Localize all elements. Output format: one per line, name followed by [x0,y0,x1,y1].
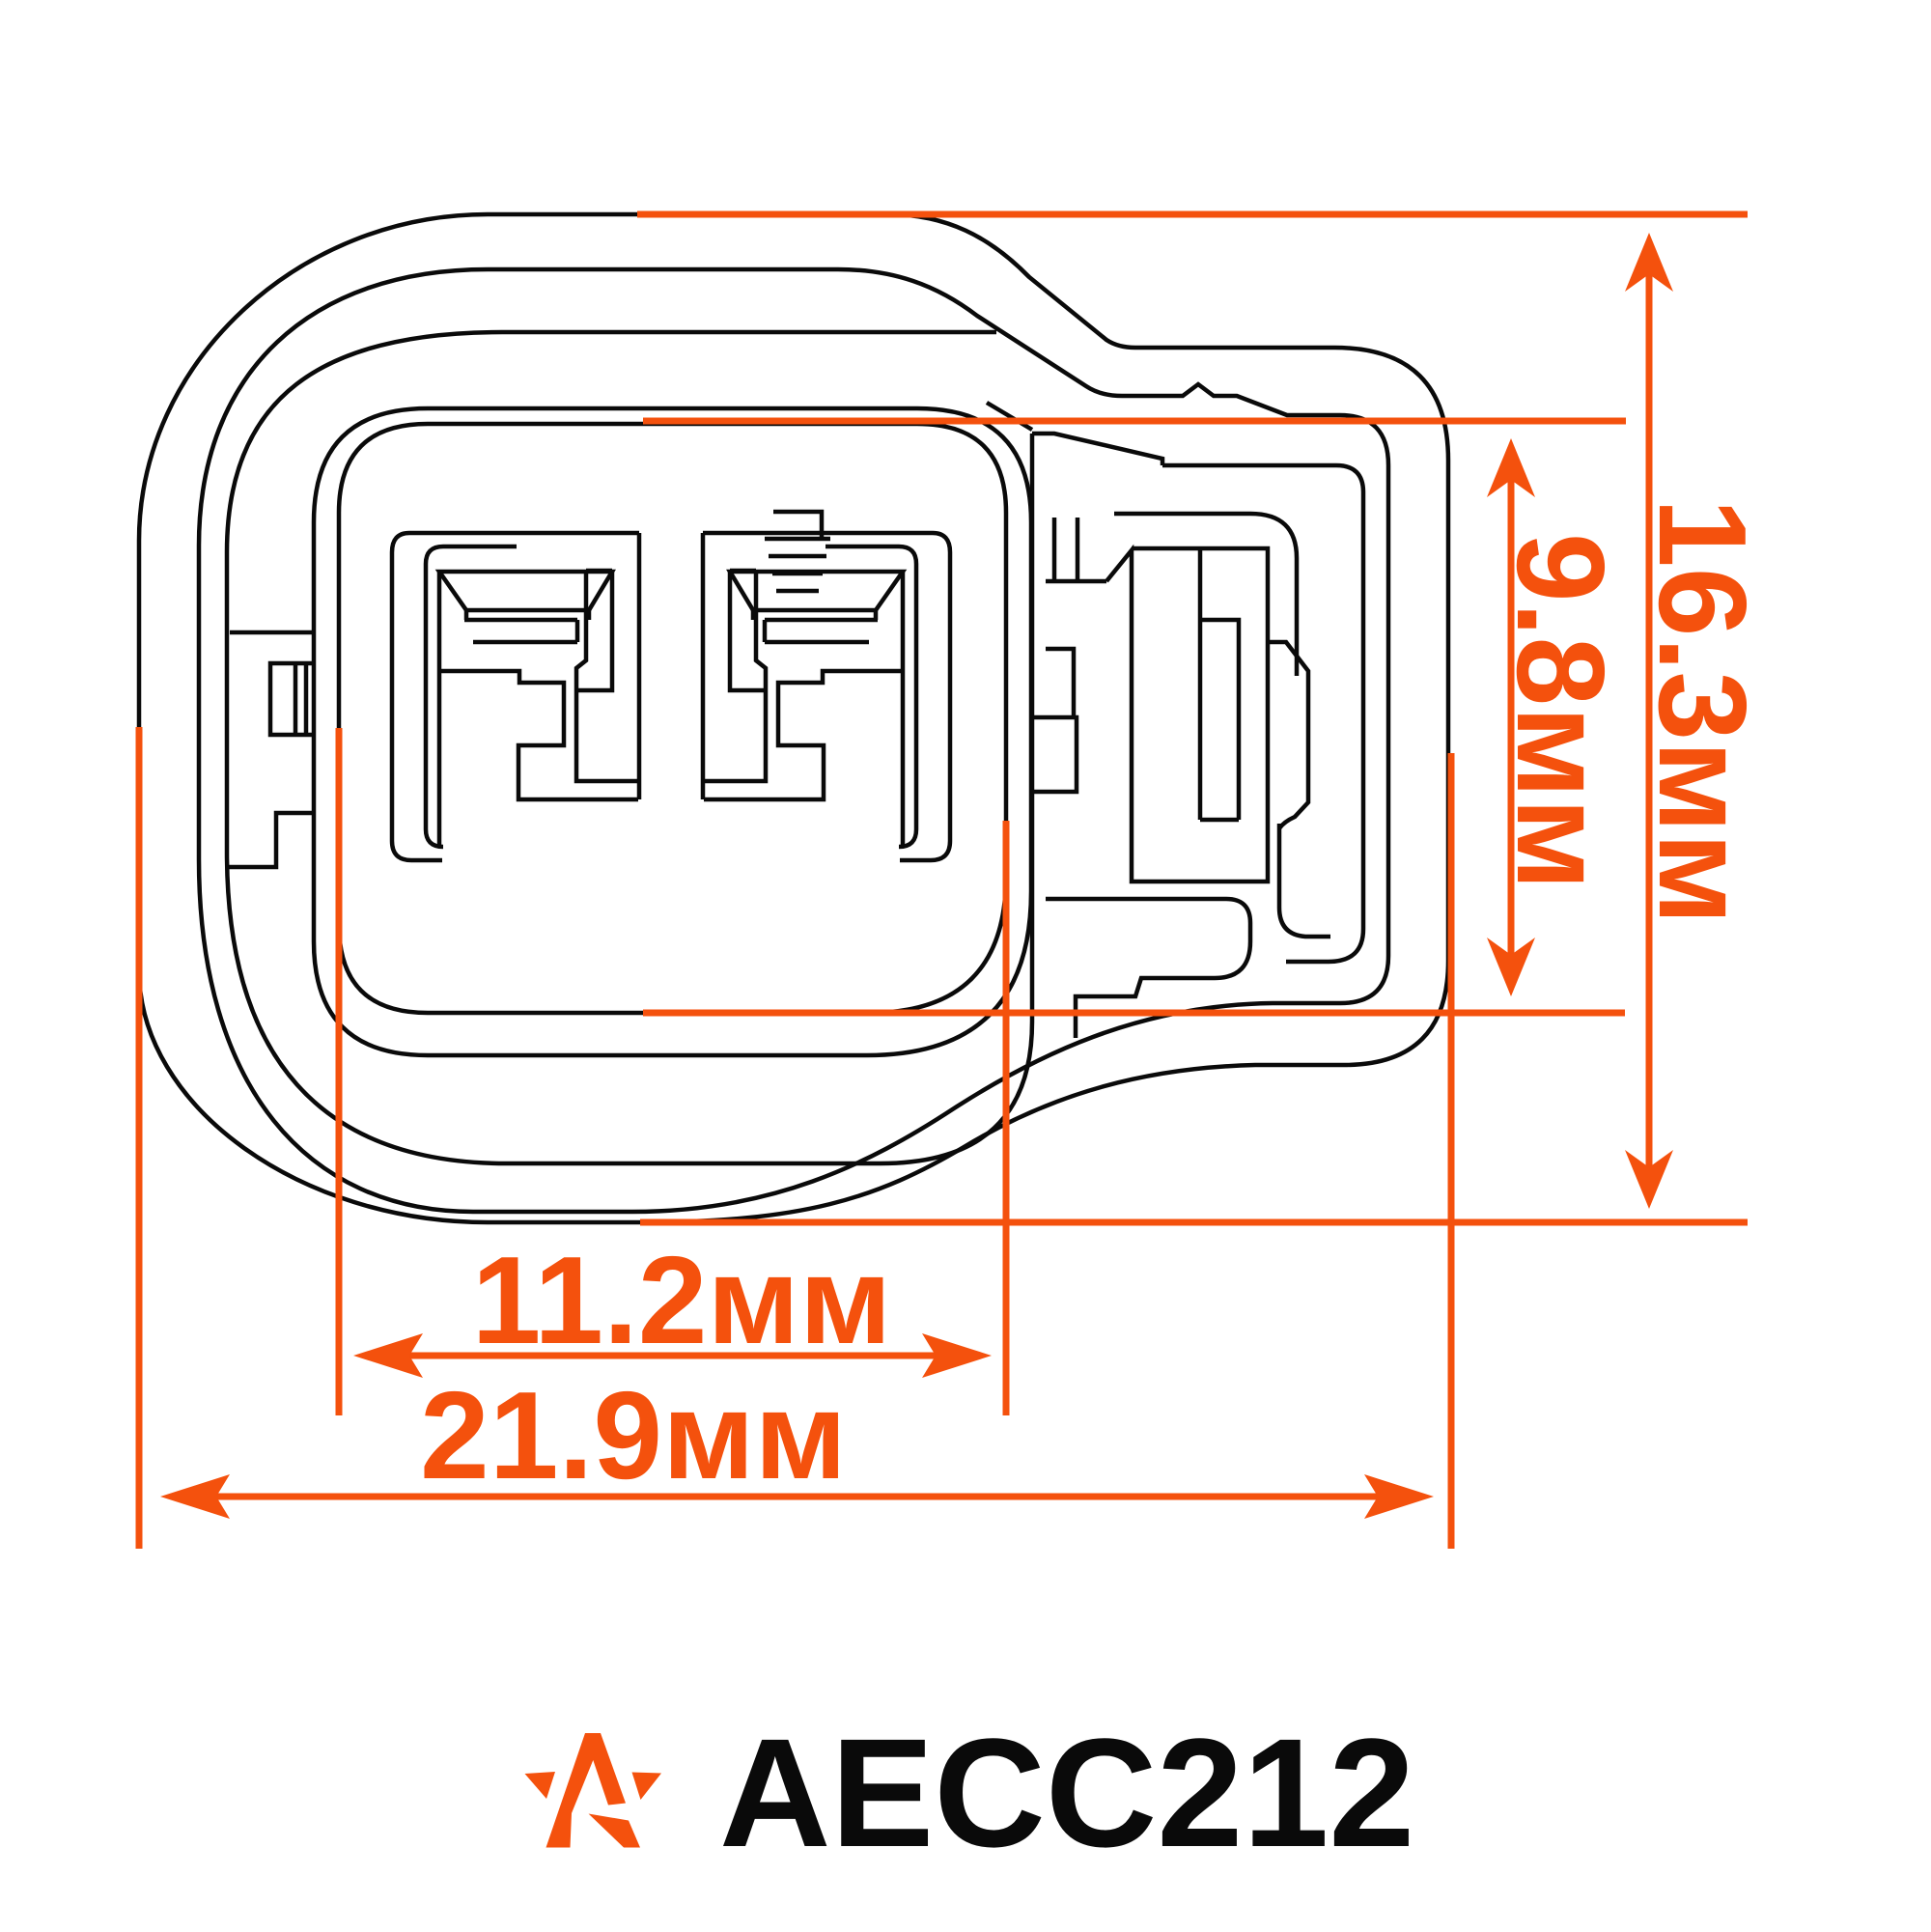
svg-text:9.8мм: 9.8мм [1491,533,1630,890]
svg-text:21.9мм: 21.9мм [420,1366,847,1505]
svg-text:11.2мм: 11.2мм [472,1231,892,1370]
svg-text:16.3мм: 16.3мм [1633,498,1772,925]
svg-text:AECC212: AECC212 [719,1706,1414,1879]
